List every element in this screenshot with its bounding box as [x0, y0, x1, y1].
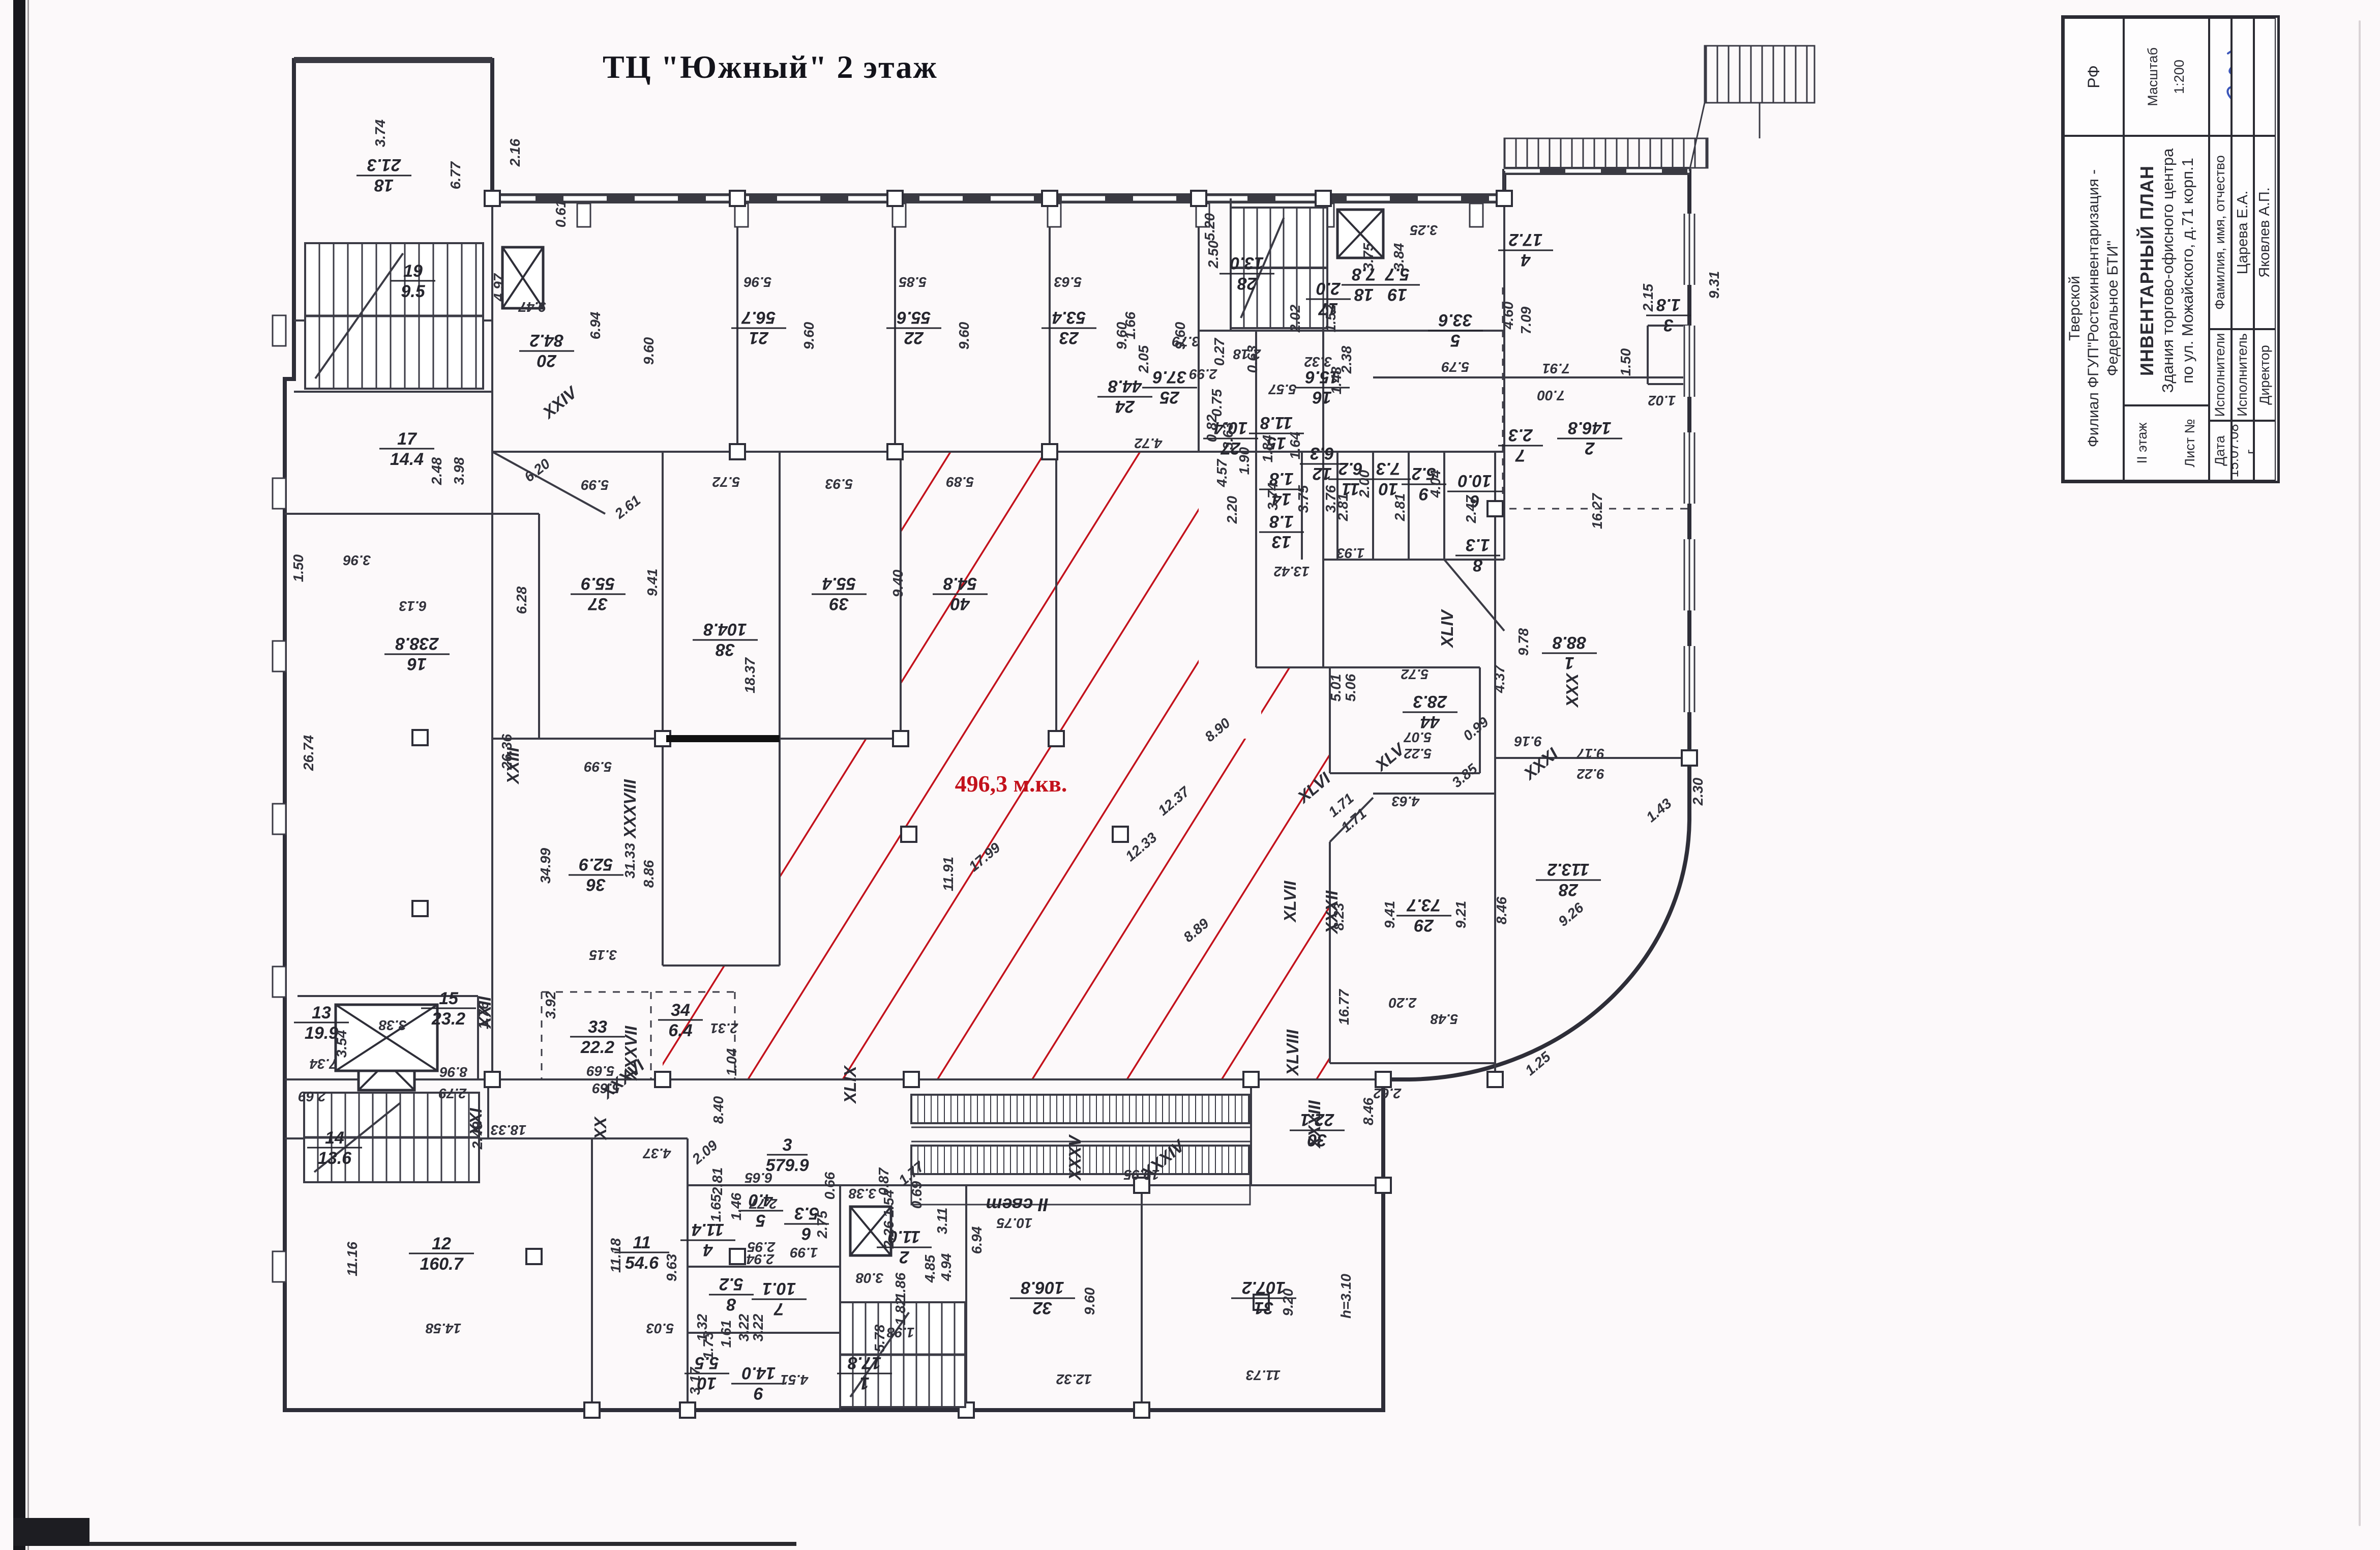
dim-label: 9.60	[641, 337, 657, 365]
doc-title-cell: ИНВЕНТАРНЫЙ ПЛАН Здания торгово-офисного…	[2124, 136, 2209, 405]
row1-sign	[2232, 18, 2254, 136]
room-area: 55.4	[822, 574, 856, 593]
dim-label: 6.94	[969, 1226, 985, 1254]
room-label: 2156.7	[731, 308, 786, 347]
dim-label: 2.77	[749, 1196, 778, 1212]
room-number: 38	[716, 640, 735, 659]
dim-label: 34.99	[538, 848, 553, 884]
dim-label: 3.08	[855, 1270, 883, 1286]
axis-label: XLIV	[1438, 608, 1456, 648]
dim-label: 2.20	[1388, 995, 1417, 1011]
room-number: 9	[754, 1384, 763, 1403]
dim-label: 4.04	[1427, 470, 1443, 498]
axis-label: XXIII	[503, 747, 522, 784]
dim-label: 0.66	[822, 1172, 838, 1200]
dim-label: 4.57	[1214, 458, 1230, 487]
dim-label: 4.72	[1134, 435, 1163, 451]
dim-label: 4.94	[938, 1253, 954, 1281]
room-number: 12	[432, 1234, 451, 1253]
room-area: 14.0	[742, 1363, 776, 1383]
dim-label: 3.22	[750, 1313, 766, 1341]
dim-label: 9.31	[1706, 271, 1722, 299]
room-area: 13.0	[1230, 253, 1264, 273]
room-number: 32	[1033, 1298, 1052, 1318]
room-label: 1714.4	[379, 429, 434, 469]
room-area: 146.8	[1568, 418, 1611, 437]
dim-label: 3.84	[1391, 243, 1407, 271]
date-header: Дата	[2209, 421, 2232, 481]
dim-label: 5.69	[586, 1063, 614, 1079]
room-label: 28113.2	[1536, 860, 1601, 899]
dim-label: 2.48	[429, 457, 444, 485]
dim-label: 1.99	[790, 1245, 818, 1261]
dim-label: 3.98	[451, 457, 467, 485]
dim-label: 5.48	[1430, 1011, 1458, 1027]
room-area: 17.8	[848, 1353, 881, 1372]
room-area: 7.3	[1376, 459, 1400, 478]
room-number: 17	[397, 429, 418, 449]
room-label: 131.8	[1259, 512, 1304, 551]
dim-label: 5.01	[1328, 674, 1344, 702]
room-label: 81.3	[1455, 535, 1500, 575]
dim-label: 1.84	[1260, 434, 1275, 462]
dim-label: 3.22	[736, 1313, 752, 1341]
dim-label: 3.92	[543, 991, 558, 1019]
room-number: 12	[1313, 464, 1332, 483]
dim-label: 9.16	[1514, 734, 1542, 749]
dim-label: 8.46	[1360, 1097, 1376, 1125]
dim-label: 9.60	[956, 321, 972, 349]
room-number: 22	[904, 328, 924, 347]
room-area: 55.6	[897, 308, 931, 327]
row1-role: Исполнитель	[2232, 329, 2254, 421]
dim-label: 11.16	[344, 1242, 360, 1276]
dim-label: 2.05	[1136, 345, 1151, 373]
dim-label: 3.74	[372, 119, 388, 147]
room-number: 13	[1272, 532, 1291, 551]
room-label: 2084.2	[519, 331, 574, 370]
dim-label: 1.50	[290, 554, 306, 582]
dim-label: 10.75	[997, 1215, 1032, 1231]
room-number: 33	[588, 1017, 607, 1037]
dim-label: 2.61	[611, 492, 643, 522]
room-area: 33.6	[1438, 310, 1472, 330]
red-area-label: 496,3 м.кв.	[955, 771, 1067, 797]
dim-label: 18.33	[491, 1122, 526, 1138]
dim-label: h=3.10	[1338, 1274, 1354, 1319]
dim-label: 4.37	[642, 1146, 671, 1161]
axis-label: XXII	[475, 996, 494, 1029]
dim-label: 9.21	[1453, 901, 1469, 929]
dim-label: 3.75	[1295, 485, 1311, 513]
dim-label: 1.52	[1323, 304, 1338, 332]
dim-label: 0.27	[1211, 337, 1227, 366]
dim-label: 1.93	[1336, 545, 1364, 561]
dim-label: 3.79	[1172, 334, 1200, 349]
room-number: 15	[439, 989, 459, 1008]
room-number: 8	[1473, 555, 1482, 575]
dim-label: 5.99	[581, 477, 609, 493]
dim-label: 4.63	[1391, 794, 1420, 809]
dim-label: 2.15	[1640, 283, 1656, 312]
dim-label: 9.40	[890, 569, 906, 597]
dim-label: 2.75	[814, 1210, 830, 1239]
room-area: 17.2	[1509, 230, 1542, 249]
dim-label: 0.82	[1204, 414, 1219, 442]
row2-sign	[2254, 18, 2276, 136]
dim-label: 9.26	[1555, 899, 1587, 929]
room-number: 20	[537, 351, 557, 370]
dim-label: 9.60	[801, 321, 817, 349]
dim-label: 3.17	[687, 1366, 703, 1395]
room-label: 2973.7	[1396, 895, 1451, 935]
dim-label: 8.40	[710, 1096, 726, 1124]
dim-label: 3.25	[1410, 222, 1438, 238]
room-area: 104.8	[703, 620, 747, 639]
dim-label: 3.96	[343, 552, 371, 568]
dim-label: 6.65	[745, 1170, 772, 1186]
row1-date: 15.07.08 г.	[2232, 421, 2254, 481]
dim-label: 2.81	[709, 1167, 725, 1196]
floor-plan-svg: 1821.3199.51714.42084.22156.72255.62353.…	[0, 0, 2380, 1550]
signature-icon	[2210, 19, 2232, 135]
room-area: 44.8	[1108, 376, 1142, 396]
dim-label: 7.00	[1537, 388, 1565, 403]
axis-label: XXXVIII	[620, 779, 639, 839]
room-area: 54.8	[943, 574, 977, 593]
dim-label: 9.17	[1576, 746, 1604, 762]
room-label: 85.2	[709, 1274, 754, 1314]
axis-label: XXIV	[538, 382, 581, 423]
hall-room-label: 3579.9	[765, 1135, 809, 1175]
room-number: 13	[312, 1003, 331, 1022]
dim-label: 1.86	[892, 1272, 908, 1300]
dim-label: 3.54	[334, 1030, 349, 1058]
title-block: Тверской Филиал ФГУП"Ростехинвентаризаци…	[2061, 15, 2280, 483]
dim-label: 1.54	[881, 1189, 897, 1217]
room-number: 23	[1059, 328, 1079, 347]
dim-label: 5.96	[743, 274, 771, 290]
dim-label: 9.60	[1082, 1287, 1097, 1315]
dim-label: 1.82	[892, 1297, 908, 1325]
dim-label: 9.20	[1280, 1288, 1296, 1316]
room-label: 3755.9	[571, 574, 626, 613]
dim-label: 6.28	[514, 586, 529, 614]
dim-label: 0.69	[909, 1181, 925, 1209]
dim-label: 5.72	[712, 474, 740, 490]
dim-label: 1.46	[728, 1192, 744, 1220]
room-number: 24	[1115, 397, 1135, 416]
dim-label: 4.97	[491, 273, 507, 302]
room-number: 18	[374, 176, 394, 195]
room-number: 7	[1514, 446, 1525, 465]
axis-label: XXXIII	[1305, 1100, 1324, 1149]
room-number: 37	[587, 594, 608, 613]
dim-label: 11.91	[940, 857, 956, 891]
dim-label: 2.00	[1356, 470, 1372, 498]
room-label: 3322.2	[570, 1017, 625, 1057]
room-label: 188.8	[1542, 633, 1597, 672]
dim-label: 5.63	[1054, 274, 1082, 290]
room-area: 5.2	[719, 1274, 743, 1294]
dim-label: 3.85	[1449, 761, 1480, 791]
dim-label: 2.20	[1224, 495, 1240, 524]
dim-label: 3.11	[934, 1208, 950, 1234]
room-area: 10.0	[1458, 471, 1492, 490]
room-number: 31	[1254, 1298, 1273, 1318]
room-label: 2444.8	[1097, 376, 1152, 416]
room-number: 1	[1565, 653, 1574, 672]
rf-cell: РФ	[2064, 18, 2124, 136]
dim-label: 2.18	[1233, 346, 1261, 362]
room-area: 6.3	[1310, 444, 1334, 463]
room-label: 2146.8	[1557, 418, 1622, 458]
axis-label: XXX	[1563, 672, 1582, 708]
floor-sheet-cell: II этаж Лист №	[2124, 405, 2209, 481]
dim-label: 9.47	[518, 299, 546, 315]
room-area: 1.3	[1466, 535, 1490, 554]
room-label: 12160.7	[409, 1234, 474, 1274]
dim-label: 11.73	[1246, 1367, 1281, 1383]
atrium-label: II свет	[986, 1194, 1049, 1215]
room-area: 6.4	[668, 1021, 692, 1040]
room-number: 28	[1559, 880, 1579, 899]
room-number: 2	[1585, 438, 1595, 458]
executors-header: Исполнители	[2209, 329, 2232, 421]
axis-label: XXI	[466, 1108, 485, 1136]
dim-label: 1.32	[694, 1313, 710, 1341]
dim-label: 8.96	[439, 1064, 467, 1080]
dim-label: 0.99	[1460, 714, 1492, 744]
dim-label: 2.69	[298, 1089, 326, 1104]
room-area: 2.3	[1508, 425, 1533, 445]
dim-label: 2.62	[1373, 1086, 1402, 1101]
dim-label: 5.99	[584, 759, 612, 775]
dim-label: 1.43	[1643, 795, 1675, 825]
room-area: 88.8	[1553, 633, 1586, 652]
dim-label: 6.13	[399, 598, 427, 614]
dim-label: 3.32	[1304, 354, 1332, 370]
dim-label: 1.02	[1648, 393, 1676, 408]
room-area: 13.6	[318, 1149, 352, 1168]
room-number: 4	[703, 1240, 713, 1260]
room-area: 238.8	[395, 634, 439, 653]
dim-label: 2.81	[1335, 493, 1351, 522]
dim-label: 3.63	[1220, 422, 1236, 450]
axis-label: XXXV	[1065, 1134, 1084, 1181]
dim-label: 2.94	[746, 1251, 775, 1267]
dim-label: 4.85	[922, 1254, 938, 1283]
room-area: 21.3	[367, 155, 401, 174]
room-number: 39	[829, 594, 849, 613]
room-number: 21	[749, 328, 769, 347]
room-area: 107.2	[1242, 1278, 1285, 1297]
dim-label: 4.60	[1500, 301, 1516, 330]
dim-label: 4.37	[1492, 664, 1507, 693]
room-label: 16238.8	[384, 634, 450, 674]
room-area: 84.2	[530, 331, 563, 350]
room-number: 16	[407, 654, 427, 674]
room-area: 56.7	[741, 308, 776, 327]
room-number: 19	[1388, 285, 1407, 304]
room-label: 32106.8	[1010, 1278, 1075, 1318]
dim-label: 2.79	[438, 1086, 467, 1101]
room-label: 533.6	[1428, 310, 1483, 350]
axis-label: XXXI	[1519, 744, 1562, 784]
room-label: 38104.8	[693, 620, 758, 659]
dim-label: 0.61	[553, 200, 569, 228]
dim-label: 1.65	[708, 1194, 724, 1222]
dim-label: 5.85	[899, 274, 927, 290]
room-number: 6	[801, 1224, 811, 1243]
dim-label: 9.78	[1515, 628, 1531, 656]
signature-cell	[2209, 18, 2232, 136]
room-area: 14.4	[390, 450, 424, 469]
dim-label: 31.33	[622, 843, 638, 879]
room-number: 18	[1354, 285, 1374, 304]
dim-label: 3.38	[848, 1186, 876, 1202]
dim-label: 3.38	[378, 1017, 406, 1033]
org-name: Тверской Филиал ФГУП"Ростехинвентаризаци…	[2064, 136, 2124, 481]
room-number: 36	[586, 875, 606, 894]
terrace-hatch	[1504, 46, 1814, 171]
room-number: 2	[899, 1247, 909, 1267]
axis-label: XLVII	[1281, 881, 1299, 923]
dim-label: 14.58	[426, 1321, 461, 1336]
room-area: 28.3	[1413, 692, 1447, 711]
room-number: 11	[633, 1233, 650, 1252]
dim-label: 16.27	[1589, 493, 1605, 529]
room-area: 106.8	[1021, 1278, 1064, 1297]
dim-label: 9.41	[644, 569, 660, 597]
room-number: 40	[950, 594, 970, 613]
scale-cell: Масштаб 1:200	[2124, 18, 2209, 136]
dim-label: 2.26	[881, 1220, 897, 1249]
room-area: 73.7	[1406, 895, 1441, 915]
room-label: 710.1	[752, 1279, 807, 1319]
dim-label: 5.78	[872, 1324, 887, 1352]
dim-label: 5.89	[946, 474, 974, 490]
room-number: 28	[1237, 274, 1257, 293]
room-number: 8	[726, 1295, 736, 1314]
room-area: 53.4	[1052, 308, 1086, 327]
dim-label: 8.86	[641, 860, 657, 888]
dim-label: 8.46	[1494, 896, 1509, 924]
room-area: 23.2	[431, 1009, 465, 1029]
room-number: 34	[671, 1001, 690, 1020]
dim-label: 1.64	[1287, 431, 1303, 459]
room-label: 914.0	[731, 1363, 786, 1403]
dim-label: 2.99	[1189, 366, 1217, 382]
room-area: 1.8	[1269, 512, 1293, 531]
dim-label: 2.09	[689, 1137, 721, 1167]
room-number: 44	[1420, 712, 1440, 732]
room-number: 5	[1450, 331, 1460, 350]
axis-label: XLVIII	[1283, 1029, 1302, 1076]
room-area: 11.4	[692, 1220, 724, 1239]
dim-label: 2.47	[1463, 494, 1479, 523]
room-label: 411.4	[680, 1220, 735, 1260]
dim-label: 5.07	[1403, 729, 1432, 745]
dim-label: 7.34	[309, 1056, 337, 1072]
dim-label: 1.61	[718, 1320, 734, 1348]
room-label: 3652.9	[569, 855, 623, 894]
room-number: 4	[1521, 250, 1531, 270]
room-label: 4428.3	[1403, 692, 1457, 732]
room-area: 55.9	[581, 574, 615, 593]
dim-label: 2.50	[1205, 240, 1221, 269]
dim-label: 4.51	[781, 1372, 809, 1388]
dim-label: 1.90	[1236, 447, 1252, 475]
dim-label: 5.22	[1404, 746, 1432, 762]
dim-label: 5.06	[1343, 674, 1358, 701]
dim-label: 18.37	[742, 657, 758, 693]
axis-label: XXXII	[1322, 890, 1341, 934]
dim-label: 2.16	[507, 138, 523, 167]
dim-label: 9.63	[664, 1253, 679, 1281]
dim-label: 6.77	[448, 161, 463, 189]
room-area: 160.7	[420, 1254, 464, 1274]
dim-label: 3.74	[1265, 482, 1281, 510]
dim-label: 5.03	[646, 1321, 674, 1336]
dim-label: 9.22	[1576, 766, 1604, 782]
room-number: 14	[325, 1128, 344, 1148]
axis-label: XLV	[1371, 739, 1409, 775]
room-area: 1.8	[1656, 295, 1680, 314]
room-area: 54.6	[625, 1253, 659, 1273]
room-area: 22.2	[580, 1038, 614, 1057]
dim-label: 1.50	[1618, 348, 1633, 376]
room-label: 1821.3	[356, 155, 411, 195]
dim-label: 2.02	[1287, 304, 1303, 333]
room-area: 11.8	[1260, 413, 1293, 432]
dim-label: 11.18	[608, 1238, 623, 1273]
room-number: 25	[1159, 388, 1180, 407]
room-area: 113.2	[1548, 860, 1590, 879]
dim-label: 1.48	[1328, 366, 1344, 394]
dim-label: 6.20	[521, 455, 553, 485]
dim-label: 16.77	[1336, 989, 1352, 1025]
dim-label: 9.41	[1382, 901, 1397, 929]
dim-label: 5.72	[1401, 666, 1429, 682]
room-area: 2.0	[1316, 279, 1341, 298]
room-area: 52.9	[579, 855, 613, 874]
room-number: 5	[755, 1211, 765, 1230]
dim-label: 7.91	[1542, 361, 1570, 376]
dim-label: 2.30	[1690, 777, 1706, 806]
dim-label: 5.57	[1268, 382, 1296, 397]
dim-label: 6.94	[587, 311, 603, 339]
scanned-sheet: ТЦ "Южный" 2 этаж	[0, 0, 2380, 1550]
room-area: 9.5	[401, 282, 425, 301]
red-hatched-area	[663, 452, 1330, 1079]
room-number: 19	[403, 261, 423, 281]
room-number: 7	[773, 1299, 784, 1319]
row2-name: Яковлев А.П.	[2254, 136, 2276, 329]
dim-label: 2.81	[1392, 493, 1408, 522]
row1-name: Царева Е.А.	[2232, 136, 2254, 329]
room-number: 3	[783, 1135, 792, 1155]
dim-label: 5.20	[1202, 213, 1217, 241]
dim-label: 2.31	[710, 1020, 739, 1036]
room-area: 10.1	[762, 1279, 796, 1298]
row2-date	[2254, 421, 2276, 481]
dim-label: 1.04	[724, 1048, 739, 1076]
fio-header: Фамилия, имя, отчество	[2209, 136, 2232, 329]
row2-role: Директор	[2254, 329, 2276, 421]
room-area: 37.6	[1152, 367, 1186, 387]
axis-label: XX	[591, 1116, 610, 1140]
